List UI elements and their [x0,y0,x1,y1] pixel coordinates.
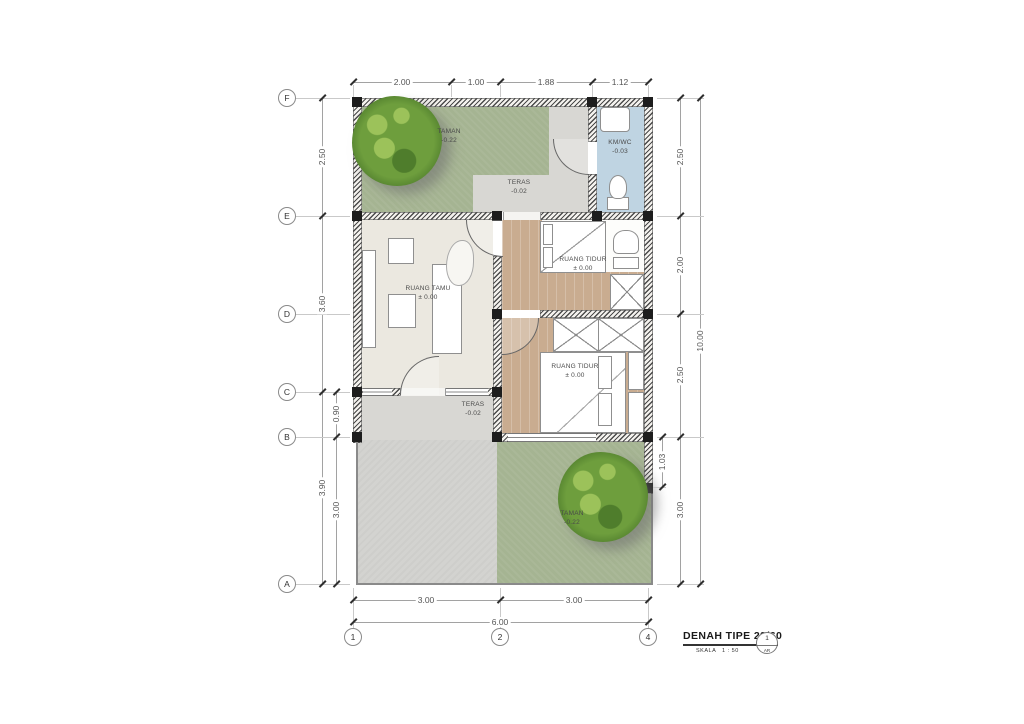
nightstand [628,352,644,390]
wardrobe [610,274,644,310]
room-name: TAMAN [560,510,583,519]
room-label-taman-back: TAMAN -0.22 [437,128,460,146]
room-label-teras-back: TERAS -0.02 [508,179,531,197]
wall-interior-b [493,318,502,392]
grid-letter: B [284,432,290,442]
drawing-ref-bubble: 1 AR [756,632,778,654]
bedroom2-window [508,433,596,442]
room-level: ± 0.00 [551,372,598,381]
scale-row: SKALA 1 : 50 [696,648,739,654]
grid-bubble-a: A [278,575,296,593]
dim-label: 3.00 [331,500,341,521]
sofa [362,250,376,348]
tree [352,96,442,186]
room-name: RUANG TIDUR [559,256,606,265]
wall-kmwc-upper [588,102,597,142]
column [643,211,653,221]
driveway-floor [357,440,497,584]
room-label-ruang-tamu: RUANG TAMU ± 0.00 [405,285,450,303]
dim-label: 1.88 [536,77,557,87]
lot-line-bottom [356,583,653,585]
lot-line-right [651,494,653,585]
grid-bubble-b: B [278,428,296,446]
room-name: TERAS [508,179,531,188]
dim-label: 2.50 [675,365,685,386]
column [352,432,362,442]
grid-bubble-2: 2 [491,628,509,646]
column [587,97,597,107]
grid-letter: D [284,309,290,319]
grid-letter: C [284,387,290,397]
scale-label: SKALA [696,648,716,654]
witness-line [500,85,501,97]
grid-letter: E [284,211,290,221]
pillow [598,356,612,389]
wall-e-west [353,212,502,220]
room-label-bedroom1: RUANG TIDUR ± 0.00 [559,256,606,274]
wall-d [540,310,653,318]
dim-line-left-outer [322,98,323,584]
desk [613,257,639,269]
column [352,387,362,397]
wardrobe [598,318,644,352]
dim-label: 1.03 [657,452,667,473]
toilet-bowl [609,175,627,199]
column [352,97,362,107]
room-name: TAMAN [437,128,460,137]
scale-value: 1 : 50 [722,648,739,654]
room-level: ± 0.00 [559,265,606,274]
column [492,309,502,319]
grid-letter: F [284,93,289,103]
grid-bubble-1: 1 [344,628,362,646]
witness-line [592,85,593,97]
dim-label: 2.50 [317,147,327,168]
floor-plan-page: TAMAN -0.22 KM/WC -0.03 TERAS -0.02 RUAN… [0,0,1024,724]
grid-bubble-c: C [278,383,296,401]
dim-label: 3.90 [317,478,327,499]
pillow [543,224,553,245]
grid-bubble-f: F [278,89,296,107]
dim-label: 0.90 [331,404,341,425]
witness-line [353,85,354,97]
back-door-opening [503,212,541,220]
tree [558,452,648,542]
witness-line [296,437,350,438]
dim-label: 1.00 [466,77,487,87]
dim-label: 10.00 [695,328,705,353]
grid-letter: A [284,579,290,589]
column [492,432,502,442]
room-label-taman-front: TAMAN -0.22 [560,510,583,528]
room-level: -0.22 [560,519,583,528]
wall-kmwc-lower [588,174,597,212]
chair [613,230,639,254]
witness-line [648,85,649,97]
dim-label: 3.00 [675,500,685,521]
room-name: KM/WC [608,139,631,148]
dim-label: 1.12 [610,77,631,87]
room-name: RUANG TIDUR [551,363,598,372]
ref-number: 1 [757,633,777,643]
room-level: -0.02 [462,410,485,419]
pillow [543,247,553,268]
witness-line [451,85,452,97]
room-name: RUANG TAMU [405,285,450,294]
room-level: ± 0.00 [405,294,450,303]
dim-label: 3.00 [564,595,585,605]
room-level: -0.02 [508,188,531,197]
column [352,211,362,221]
dim-label: 3.60 [317,294,327,315]
room-level: -0.03 [608,148,631,157]
dim-label: 2.00 [675,255,685,276]
column [643,97,653,107]
pillow [598,393,612,426]
room-name: TERAS [462,401,485,410]
grid-number: 1 [351,632,356,642]
grid-number: 4 [646,632,651,642]
side-table [388,238,414,264]
grid-bubble-4: 4 [639,628,657,646]
grid-bubble-d: D [278,305,296,323]
column [592,211,602,221]
lot-line-left [356,440,358,585]
column [492,387,502,397]
dim-label: 2.00 [392,77,413,87]
living-window-right [446,388,488,396]
wardrobe [553,318,599,352]
grid-bubble-e: E [278,207,296,225]
column [643,432,653,442]
grid-number: 2 [498,632,503,642]
column [643,309,653,319]
room-label-teras-front: TERAS -0.02 [462,401,485,419]
nightstand [628,392,644,433]
room-label-bedroom2: RUANG TIDUR ± 0.00 [551,363,598,381]
room-label-kmwc: KM/WC -0.03 [608,139,631,157]
ref-code: AR [757,645,777,654]
dim-label: 3.00 [416,595,437,605]
sink [600,107,630,132]
dim-label: 6.00 [490,617,511,627]
living-window-left [363,388,392,396]
room-level: -0.22 [437,137,460,146]
dim-label: 2.50 [675,147,685,168]
